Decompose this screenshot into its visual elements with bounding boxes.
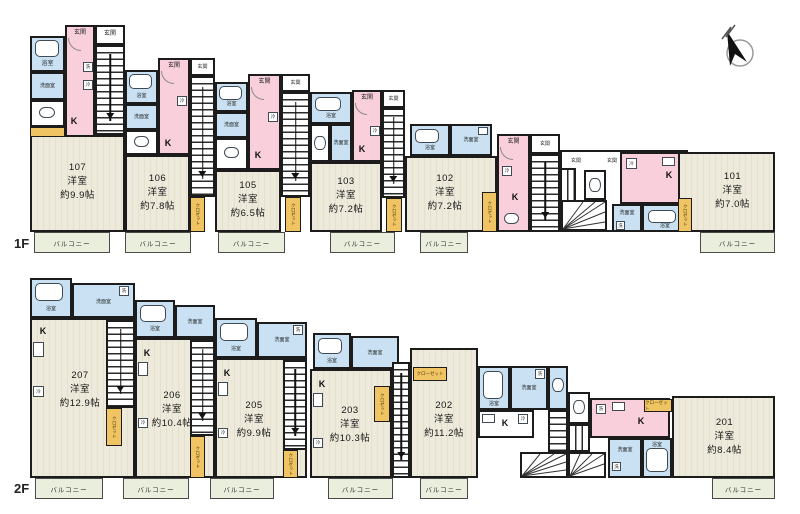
stair-direction-arrow (295, 102, 297, 181)
balcony-label: バルコニー (53, 238, 90, 248)
washroom-label: 洗面室 (215, 112, 248, 138)
unit-size: 約8.4帖 (707, 444, 742, 458)
fridge-label: 冷 (141, 420, 146, 426)
kitchen-label: K (355, 142, 369, 156)
balcony: バルコニー (125, 232, 191, 253)
sink-icon (33, 342, 44, 357)
staircase-icon (106, 320, 135, 408)
unit-room-type: 洋室 (67, 175, 87, 189)
unit-103-label: 103 洋室 約7.2帖 (310, 163, 382, 229)
bathtub-icon (315, 97, 341, 111)
balcony-label: バルコニー (342, 484, 379, 494)
unit-size: 約12.9帖 (60, 397, 101, 411)
bath-label: 浴室 (215, 99, 248, 110)
toilet-icon (552, 378, 564, 392)
unit-room-type: 洋室 (244, 413, 264, 427)
toilet-icon (504, 213, 519, 224)
fridge-icon: 冷 (138, 418, 148, 428)
balcony: バルコニー (123, 478, 189, 499)
bathtub-icon (220, 323, 248, 341)
kitchen-label: K (634, 414, 648, 428)
bath-label: 浴室 (310, 111, 352, 122)
bath-label: 浴室 (215, 344, 257, 355)
bath-label: 浴室 (478, 399, 510, 409)
entrance-label: 玄関 (190, 60, 215, 74)
unit-number: 102 (436, 172, 453, 186)
balcony: バルコニー (218, 232, 285, 253)
unit-size: 約9.9帖 (237, 427, 272, 441)
unit-202-closet: クローゼット (413, 367, 447, 381)
fridge-icon: 冷 (502, 166, 512, 176)
washer-label: 洗 (618, 223, 623, 229)
unit-203-closet: クロゼット (374, 386, 390, 422)
stair-direction-arrow (294, 369, 296, 436)
fridge-icon: 冷 (33, 386, 44, 397)
unit-size: 約6.5帖 (231, 207, 266, 221)
unit-room-type: 洋室 (434, 413, 454, 427)
fridge-label: 冷 (180, 98, 185, 104)
unit-number: 202 (435, 399, 452, 413)
winder-stairs-icon (561, 200, 607, 231)
bathtub-icon (140, 305, 166, 322)
fridge-icon: 冷 (218, 428, 228, 438)
staircase-icon (530, 154, 560, 232)
closet-label: クロゼット (380, 393, 385, 416)
unit-room-type: 洋室 (714, 430, 734, 444)
toilet-icon (573, 400, 585, 414)
closet-label: クローゼット (645, 400, 671, 412)
unit-size: 約7.0帖 (715, 198, 750, 212)
balcony: バルコニー (328, 478, 393, 499)
fridge-icon: 冷 (268, 112, 278, 122)
unit-number: 203 (341, 404, 358, 418)
bath-label: 浴室 (30, 58, 65, 70)
staircase-icon (190, 340, 215, 436)
washer-icon: 洗 (612, 462, 621, 471)
unit-105-closet: クロゼット (285, 197, 301, 232)
fridge-label: 冷 (521, 416, 526, 422)
fridge-label: 冷 (373, 128, 378, 134)
fridge-label: 冷 (316, 440, 321, 446)
washer-icon: 洗 (293, 325, 303, 335)
unit-room-type: 洋室 (340, 418, 360, 432)
balcony-label: バルコニー (50, 484, 87, 494)
unit-202-label: 202 洋室 約11.2帖 (410, 385, 478, 455)
entrance-label: 玄関 (382, 92, 405, 106)
bath-label: 浴室 (410, 143, 450, 154)
balcony-label: バルコニー (425, 484, 462, 494)
kitchen-label: K (662, 168, 676, 182)
bath-label: 浴室 (125, 90, 158, 102)
unit-room-type: 洋室 (238, 193, 258, 207)
bath-label: 浴室 (135, 324, 175, 335)
unit-size: 約10.3帖 (330, 432, 371, 446)
toilet-icon (589, 178, 601, 192)
bathtub-icon (415, 129, 439, 143)
balcony: バルコニー (712, 478, 775, 499)
bathtub-icon (318, 338, 342, 354)
bathtub-icon (646, 448, 668, 472)
bathtub-icon (35, 283, 63, 301)
floor-2f-label: 2F (14, 481, 29, 496)
washroom-label: 洗面室 (257, 333, 307, 347)
sink-icon (218, 382, 228, 396)
closet-label: クローゼット (417, 371, 444, 377)
unit-size: 約9.9帖 (60, 189, 95, 203)
unit-105-label: 105 洋室 約6.5帖 (215, 171, 281, 229)
unit-206-closet: クロゼット (190, 436, 205, 478)
stair-direction-arrow (393, 117, 395, 184)
kitchen-label: K (67, 114, 81, 128)
washer-label: 洗 (86, 64, 91, 70)
balcony: バルコニー (35, 478, 103, 499)
unit-number: 105 (239, 179, 256, 193)
closet-label: クロゼット (487, 201, 492, 224)
entrance-label: 玄関 (352, 93, 382, 103)
fridge-label: 冷 (86, 82, 91, 88)
washer-icon: 洗 (596, 404, 606, 414)
washer-icon: 洗 (535, 369, 545, 379)
kitchen-label: K (140, 346, 154, 360)
stair-direction-arrow (109, 54, 111, 121)
kitchen-label: K (508, 190, 522, 204)
unit-107-closet (30, 127, 65, 137)
washer-icon: 洗 (119, 286, 129, 296)
washroom-label: 洗面室 (30, 72, 65, 100)
balcony: バルコニー (420, 478, 468, 499)
unit-size: 約7.2帖 (428, 200, 463, 214)
unit-room-type: 洋室 (147, 186, 167, 200)
unit-103-closet: クロゼット (386, 198, 402, 232)
north-arrow-icon (714, 22, 762, 72)
entrance-label: 玄関 (248, 77, 281, 87)
entrance-label: 玄関 (95, 27, 125, 41)
washroom-label: 洗面室 (175, 315, 215, 329)
washroom-label: 洗面室 (330, 124, 352, 162)
entrance-label: 玄関 (497, 137, 530, 147)
staircase-icon (95, 45, 125, 135)
balcony: バルコニー (34, 232, 110, 253)
balcony: バルコニー (210, 478, 274, 499)
washer-label: 洗 (614, 464, 619, 470)
stair-direction-arrow (120, 329, 122, 395)
unit-102-closet: クロゼット (482, 192, 497, 232)
washroom-label: 洗面室 (612, 206, 642, 220)
unit-size: 約11.2帖 (424, 427, 464, 441)
unit-room-type: 洋室 (336, 189, 356, 203)
fridge-icon: 冷 (518, 414, 528, 424)
fridge-icon: 冷 (626, 158, 637, 169)
fridge-label: 冷 (221, 430, 226, 436)
balcony-label: バルコニー (725, 484, 762, 494)
unit-number: 206 (163, 389, 180, 403)
stair-direction-arrow (202, 87, 204, 178)
closet-label: クロゼット (392, 204, 397, 227)
unit-number: 106 (149, 172, 166, 186)
kitchen-label: K (161, 136, 175, 150)
winder-stairs-icon (520, 452, 568, 478)
balcony: バルコニー (330, 232, 395, 253)
unit-201-label: 201 洋室 約8.4帖 (682, 402, 767, 472)
balcony: バルコニー (420, 232, 468, 253)
closet-label: クロゼット (195, 446, 200, 469)
balcony-label: バルコニー (344, 238, 381, 248)
staircase-icon (568, 424, 590, 452)
unit-number: 107 (69, 161, 86, 175)
washroom-label: 洗面室 (125, 104, 158, 130)
closet-label: クロゼット (683, 204, 688, 227)
staircase-icon (392, 362, 410, 478)
staircase-icon (281, 92, 310, 197)
staircase-icon (548, 410, 568, 452)
unit-number: 103 (337, 175, 354, 189)
unit-106-label: 106 洋室 約7.8帖 (125, 158, 190, 228)
staircase-icon (382, 108, 405, 198)
washer-icon: 洗 (616, 221, 625, 230)
balcony-label: バルコニー (223, 484, 260, 494)
winder-stairs-icon (568, 452, 606, 478)
fridge-label: 冷 (629, 161, 634, 167)
unit-number: 101 (724, 170, 741, 184)
unit-size: 約7.2帖 (329, 203, 364, 217)
entrance-label: 玄関 (158, 61, 190, 71)
closet-label: クロゼット (112, 416, 117, 439)
staircase-icon (190, 76, 215, 197)
toilet-icon (134, 136, 149, 147)
unit-number: 201 (716, 416, 733, 430)
kitchen-label: K (498, 416, 512, 430)
washer-label: 洗 (122, 288, 127, 294)
unit-room-type: 洋室 (722, 184, 742, 198)
unit-room-type: 洋室 (435, 186, 455, 200)
sink-icon (612, 402, 625, 411)
balcony-label: バルコニー (139, 238, 176, 248)
fridge-icon: 冷 (83, 80, 93, 90)
toilet-icon (39, 107, 55, 118)
unit-201-closet: クローゼット (644, 399, 672, 412)
fridge-label: 冷 (271, 114, 276, 120)
entrance-label: 玄関 (530, 137, 560, 151)
washer-label: 洗 (599, 406, 604, 412)
unit-101-label: 101 洋室 約7.0帖 (690, 158, 775, 224)
entrance-label: 玄関 (281, 76, 310, 90)
stair-direction-arrow (544, 162, 546, 220)
closet-label: クロゼット (288, 453, 293, 476)
kitchen-label: K (251, 148, 265, 162)
stair-direction-arrow (202, 349, 204, 421)
unit-room-type: 洋室 (162, 403, 182, 417)
entrance-label: 玄関 (563, 155, 589, 167)
washroom-label: 洗面室 (608, 444, 642, 456)
fridge-icon: 冷 (177, 96, 187, 106)
toilet-icon (314, 136, 326, 150)
unit-205-closet: クロゼット (283, 450, 298, 478)
unit-106-closet: クロゼット (190, 197, 205, 232)
unit-107-label: 107 洋室 約9.9帖 (30, 146, 125, 218)
bathtub-icon (35, 40, 59, 57)
balcony-label: バルコニー (233, 238, 270, 248)
fridge-label: 冷 (36, 389, 41, 395)
unit-size: 約10.4帖 (152, 417, 193, 431)
balcony-label: バルコニー (719, 238, 756, 248)
fridge-icon: 冷 (313, 438, 323, 448)
sink-icon (138, 362, 148, 376)
floorplan-canvas: 1F 107 洋室 約9.9帖 浴室 洗面室 玄関 洗 冷 K 玄関 バルコニー… (0, 0, 800, 514)
unit-room-type: 洋室 (70, 383, 90, 397)
washroom-label: 洗面室 (72, 295, 135, 309)
floor-1f-label: 1F (14, 236, 29, 251)
stair-direction-arrow (400, 373, 402, 460)
unit-number: 205 (245, 399, 262, 413)
balcony-label: バルコニー (425, 238, 462, 248)
washer-label: 洗 (296, 327, 301, 333)
closet-label: クロゼット (291, 203, 296, 226)
closet-label: クロゼット (195, 203, 200, 226)
balcony: バルコニー (700, 232, 775, 253)
balcony-label: バルコニー (137, 484, 174, 494)
bath-label: 浴室 (30, 303, 72, 315)
bath-label: 浴室 (642, 440, 672, 450)
washer-icon: 洗 (83, 62, 93, 72)
kitchen-label: K (220, 366, 234, 380)
bathtub-icon (483, 371, 503, 399)
sink-icon (482, 414, 495, 423)
fridge-icon: 冷 (370, 126, 380, 136)
washroom-label: 洗面室 (351, 346, 399, 360)
sink-icon (313, 393, 323, 407)
bathtub-icon (129, 74, 152, 89)
sink-icon (478, 127, 488, 135)
washroom-label: 洗面室 (510, 381, 548, 395)
unit-size: 約7.8帖 (140, 200, 175, 214)
washer-label: 洗 (538, 371, 543, 377)
unit-207-closet: クロゼット (106, 408, 122, 446)
kitchen-label: K (36, 324, 50, 338)
kitchen-label: K (315, 377, 329, 391)
unit-102-label: 102 洋室 約7.2帖 (405, 158, 485, 228)
unit-205-label: 205 洋室 約9.9帖 (218, 385, 290, 455)
unit-number: 207 (71, 369, 88, 383)
entrance-label: 玄関 (65, 28, 95, 38)
fridge-label: 冷 (505, 168, 510, 174)
bath-label: 浴室 (313, 356, 351, 367)
bathtub-icon (219, 86, 242, 100)
staircase-icon (283, 360, 307, 450)
sink-icon (662, 157, 675, 166)
toilet-icon (224, 147, 239, 158)
